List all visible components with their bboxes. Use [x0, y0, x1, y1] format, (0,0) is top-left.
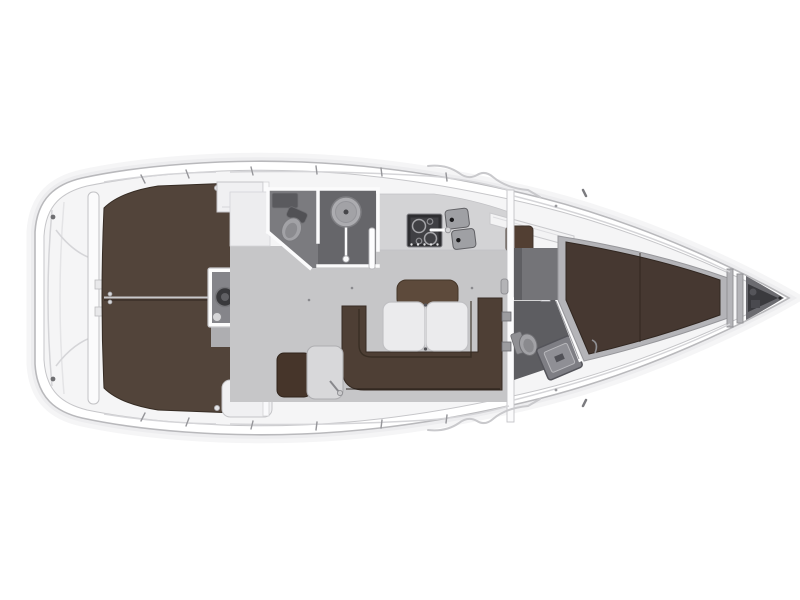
floorplan-svg: [0, 0, 800, 600]
rod-fitting-2: [108, 300, 112, 304]
sink-basin-1: [445, 208, 470, 230]
windlass-motor: [751, 300, 760, 308]
engine-pulley-hub: [221, 293, 229, 301]
faucet-base: [445, 227, 451, 233]
aft-head-vanity: [272, 193, 298, 208]
shower-drain-dot: [344, 210, 349, 215]
bulkhead-wall: [507, 190, 514, 422]
rod-fitting-1: [108, 292, 112, 296]
shower-head: [343, 256, 349, 262]
chart-table-knob: [337, 390, 342, 395]
stern-fitting-dot-top: [51, 215, 56, 220]
deck-dot-top: [555, 205, 558, 208]
door-handle: [501, 279, 508, 294]
nav-seat: [277, 353, 311, 397]
cabin-lamp-bottom: [214, 405, 219, 410]
deck-dot-bottom: [555, 389, 558, 392]
boat-floorplan: [0, 0, 800, 600]
stern-fitting-dot-bottom: [51, 377, 56, 382]
door-hinge-bottom: [502, 342, 511, 351]
forward-cabin-floor-shadow: [514, 248, 522, 300]
engine-filter: [213, 313, 222, 322]
salon-cabinet-topleft: [230, 192, 270, 246]
table-hinge-bottom: [424, 347, 427, 350]
bow-tip-fitting: [778, 296, 781, 299]
table-hinge-top: [424, 303, 427, 306]
windlass-gypsy: [750, 289, 757, 296]
door-hinge-top: [502, 312, 511, 321]
bow-bulkhead-1: [727, 269, 733, 327]
table-leaf-right: [426, 302, 468, 351]
sink-basin-2: [451, 228, 476, 250]
table-leaf-left: [383, 302, 425, 351]
bow-bulkhead-2: [737, 274, 743, 323]
transom-bulkhead: [88, 192, 99, 404]
aft-head-door: [369, 228, 375, 269]
